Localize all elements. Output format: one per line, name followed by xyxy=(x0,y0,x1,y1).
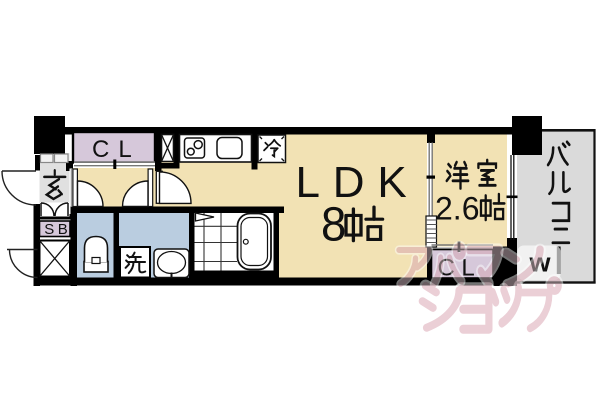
svg-text:CL: CL xyxy=(92,136,141,163)
svg-text:LDK: LDK xyxy=(296,158,420,207)
svg-text:8: 8 xyxy=(321,197,346,250)
svg-text:2.6: 2.6 xyxy=(435,191,479,227)
svg-text:SB: SB xyxy=(44,221,71,238)
